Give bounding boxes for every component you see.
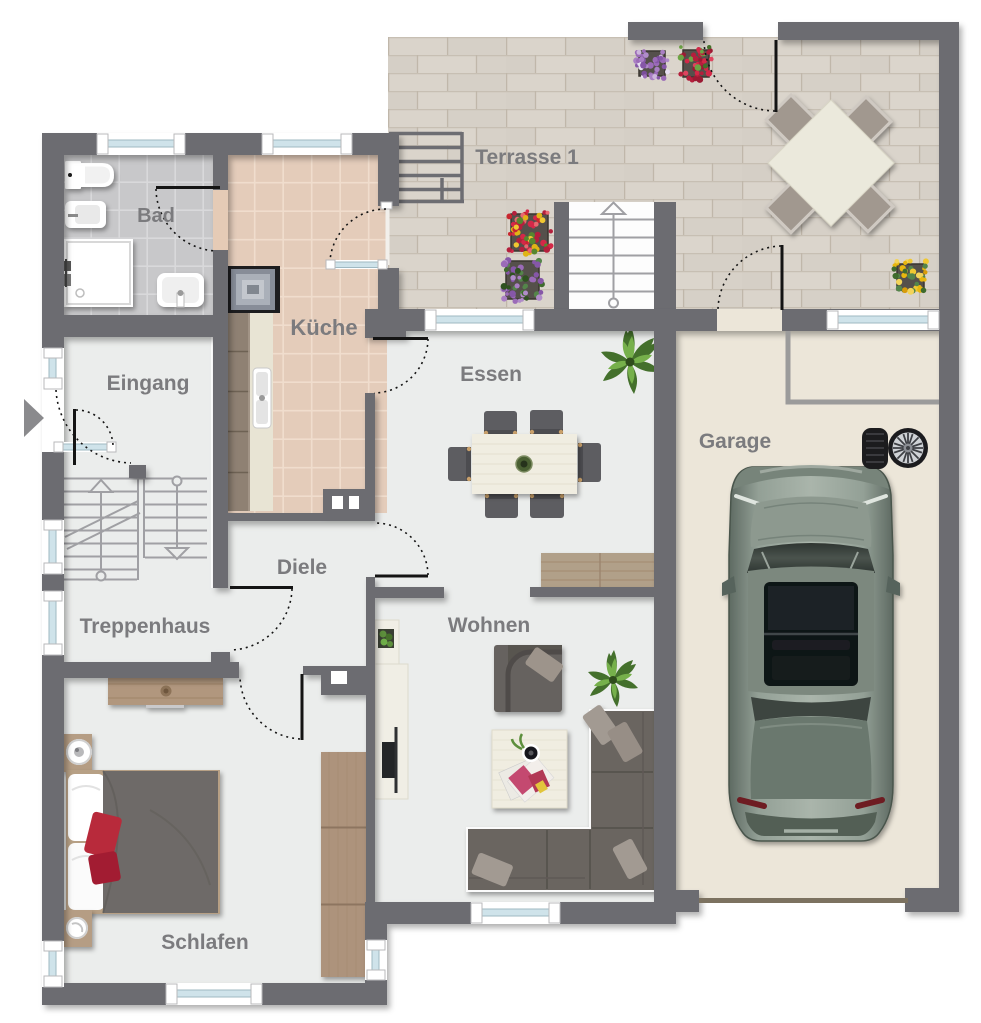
svg-text:Bad: Bad	[137, 205, 175, 227]
svg-text:Treppenhaus: Treppenhaus	[80, 615, 211, 638]
svg-text:Eingang: Eingang	[107, 372, 190, 395]
svg-text:Garage: Garage	[699, 430, 771, 453]
svg-text:Wohnen: Wohnen	[448, 614, 530, 637]
svg-text:Diele: Diele	[277, 556, 327, 579]
svg-text:Essen: Essen	[460, 363, 522, 386]
svg-text:Terrasse 1: Terrasse 1	[475, 146, 579, 169]
svg-text:Küche: Küche	[290, 315, 357, 340]
svg-text:Schlafen: Schlafen	[161, 931, 249, 954]
